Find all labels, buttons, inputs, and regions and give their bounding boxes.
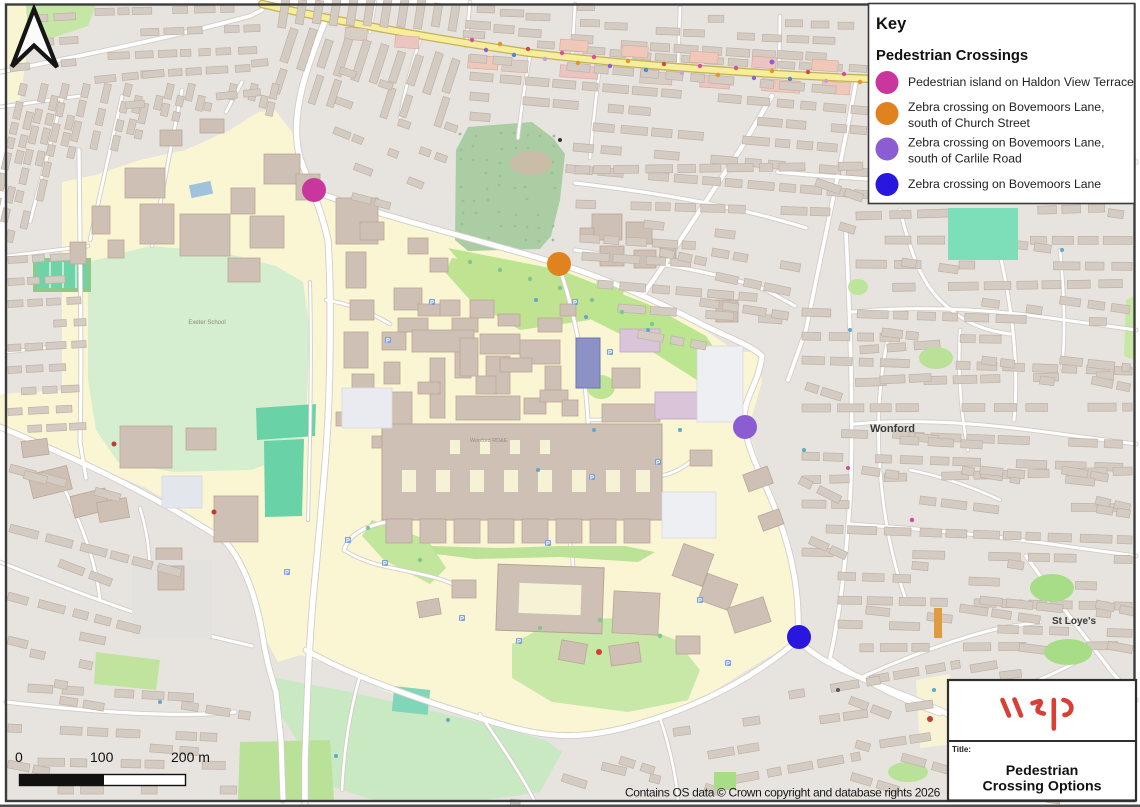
svg-text:0: 0	[15, 749, 23, 765]
svg-text:P: P	[430, 300, 434, 306]
svg-text:P: P	[383, 561, 387, 567]
svg-text:Wonford: Wonford	[870, 423, 915, 435]
svg-text:Crossing Options: Crossing Options	[982, 779, 1101, 795]
svg-text:Contains OS data © Crown copyr: Contains OS data © Crown copyright and d…	[625, 786, 941, 800]
svg-text:Zebra crossing on Bovemoors La: Zebra crossing on Bovemoors Lane,	[908, 100, 1104, 114]
svg-text:P: P	[726, 661, 730, 667]
svg-text:St Loye's: St Loye's	[1052, 616, 1096, 627]
svg-text:Zebra crossing on Bovemoors La: Zebra crossing on Bovemoors Lane	[908, 177, 1101, 191]
svg-text:100: 100	[90, 749, 114, 765]
svg-text:Title:: Title:	[952, 745, 971, 754]
svg-text:P: P	[656, 460, 660, 466]
svg-text:Pedestrian island on Haldon Vi: Pedestrian island on Haldon View Terrace	[908, 75, 1134, 89]
svg-text:south of Carlile Road: south of Carlile Road	[908, 152, 1022, 166]
svg-text:P: P	[573, 300, 577, 306]
svg-text:P: P	[285, 570, 289, 576]
svg-text:P: P	[346, 538, 350, 544]
svg-text:Key: Key	[876, 15, 907, 33]
svg-text:P: P	[386, 338, 390, 344]
svg-text:P: P	[608, 350, 612, 356]
svg-text:200 m: 200 m	[171, 749, 210, 765]
svg-text:P: P	[590, 475, 594, 481]
svg-text:Wonford RD&E: Wonford RD&E	[470, 438, 508, 444]
svg-text:Pedestrian Crossings: Pedestrian Crossings	[876, 48, 1028, 64]
svg-text:P: P	[698, 598, 702, 604]
svg-text:Pedestrian: Pedestrian	[1006, 763, 1079, 779]
svg-text:Exeter School: Exeter School	[188, 320, 225, 326]
svg-text:P: P	[546, 541, 550, 547]
svg-text:P: P	[517, 639, 521, 645]
svg-text:Zebra crossing on Bovemoors La: Zebra crossing on Bovemoors Lane,	[908, 136, 1104, 150]
svg-text:south of Church Street: south of Church Street	[908, 116, 1031, 130]
svg-text:P: P	[460, 616, 464, 622]
